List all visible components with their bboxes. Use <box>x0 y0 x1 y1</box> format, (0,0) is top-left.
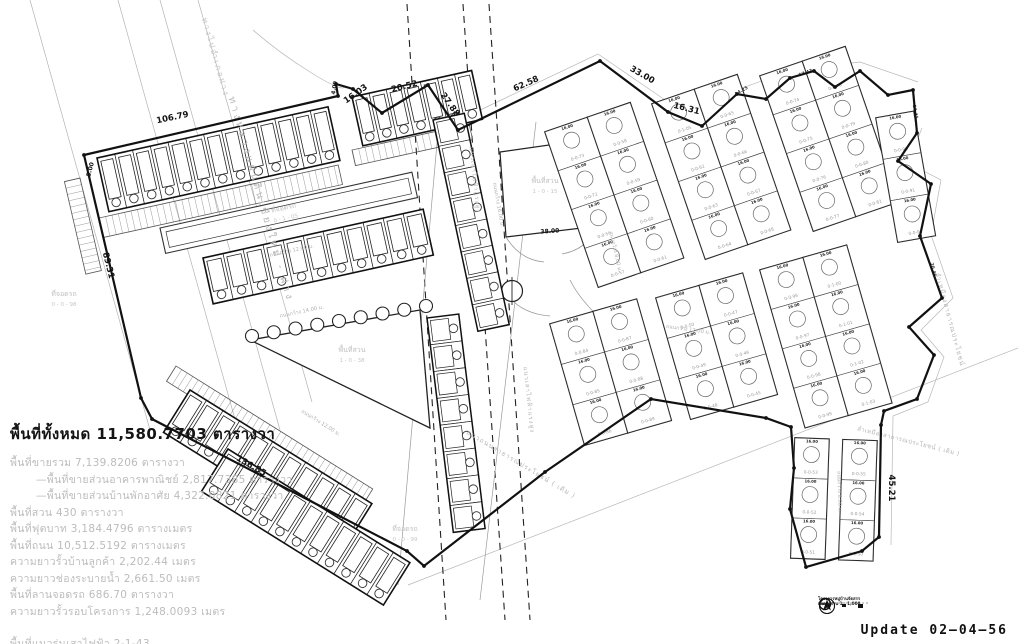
tree-circle <box>246 330 259 343</box>
boundary-vertex <box>426 83 430 87</box>
boundary-vertex <box>82 153 86 157</box>
lot-dim-label: 16.00 <box>851 520 864 525</box>
boundary-vertex <box>918 234 922 238</box>
summary-line: พื้นที่ขายรวม 7,139.8206 ตารางวา <box>10 455 340 472</box>
edge-name-label: ทางไปอำเภอฝาง <box>200 17 231 98</box>
column-circle <box>468 484 478 494</box>
area-label-sub: 1 - 0 - 15 <box>533 189 558 195</box>
area-summary-block: พื้นที่ทั้งหมด 11,580.7703 ตารางวา พื้นท… <box>10 422 340 644</box>
lot-dim-label: 16.00 <box>852 480 865 485</box>
boundary-vertex <box>598 59 602 63</box>
boundary-vertex <box>858 69 862 73</box>
boundary-vertex <box>804 565 808 569</box>
area-label: พื้นที่สวน1 - 0 - 15 <box>531 174 558 195</box>
area-label-sub: 0 - 0 - 98 <box>52 302 77 308</box>
column-circle <box>465 458 475 468</box>
boundary-vertex <box>735 92 739 96</box>
summary-line: พื้นที่สวน 430 ตารางวา <box>10 505 340 522</box>
boundary-vertex <box>764 97 768 101</box>
area-label-title: ที่จอดรถ <box>51 289 76 298</box>
boundary-vertex <box>879 423 883 427</box>
boundary-vertex <box>788 76 792 80</box>
boundary-vertex <box>405 549 409 553</box>
total-area-title: พื้นที่ทั้งหมด 11,580.7703 ตารางวา <box>10 422 340 446</box>
column-circle <box>459 404 469 414</box>
boundary-vertex <box>649 397 653 401</box>
boundary-vertex <box>860 549 864 553</box>
summary-line: ความยาวรั้วบ้านลูกค้า 2,202.44 เมตร <box>10 554 340 571</box>
boundary-vertex <box>788 507 792 511</box>
dimension-label: 45.21 <box>886 475 896 502</box>
boundary-vertex <box>911 88 915 92</box>
boundary-vertex <box>139 396 143 400</box>
column-circle <box>449 324 459 334</box>
column-circle <box>452 350 462 360</box>
north-arrow-icon <box>818 597 836 615</box>
parking-strip <box>64 178 101 274</box>
summary-line: พื้นที่ลานจอดรถ 686.70 ตารางวา <box>10 587 340 604</box>
road-width-label: ถนนกว้าง 14.00 ม. <box>279 303 325 319</box>
boundary-vertex <box>700 124 704 128</box>
parking-strip-rect <box>64 178 101 274</box>
boundary-vertex <box>886 93 890 97</box>
area-label: ที่จอดรถ0 - 0 - 98 <box>51 289 77 308</box>
boundary-vertex <box>833 85 837 89</box>
boundary-vertex <box>907 325 911 329</box>
boundary-vertex <box>812 69 816 73</box>
tree-circle <box>289 322 302 335</box>
area-label: พื้นที่สวน1 - 0 - 38 <box>338 343 365 364</box>
dimension-label: 33.00 <box>628 64 656 86</box>
tree-circle <box>311 318 324 331</box>
area-summary-lines: พื้นที่ขายรวม 7,139.8206 ตารางวา —พื้นที… <box>10 455 340 644</box>
boundary-vertex <box>882 409 886 413</box>
boundary-vertex <box>351 87 355 91</box>
road-width-label: ถนนกว้าง 8.00 ม. <box>835 471 843 513</box>
column-circle <box>472 511 482 521</box>
lot-dim-label: 16.00 <box>806 438 819 443</box>
boundary-vertex <box>932 353 936 357</box>
tree-circle <box>267 326 280 339</box>
tree-circle <box>420 300 433 313</box>
boundary-vertex <box>150 417 154 421</box>
lot-dim-label: 16.00 <box>803 518 816 523</box>
summary-line: ความยาวช่องระบายน้ำ 2,661.50 เมตร <box>10 571 340 588</box>
update-date-label: Update 02–04–56 <box>861 623 1008 638</box>
site-plan-page: 0-0-7316.000-0-7216.000-0-5616.000-0-571… <box>0 0 1024 644</box>
lot-id-label: 0-0-55 <box>852 471 867 477</box>
boundary-vertex <box>940 296 944 300</box>
boundary-vertex <box>915 397 919 401</box>
boundary-vertex <box>380 111 384 115</box>
area-label: ที่จอดรถ0 - 0 - 99 <box>392 524 418 543</box>
boundary-vertex <box>789 425 793 429</box>
dimension-label: 106.79 <box>155 110 189 127</box>
boundary-vertex <box>764 416 768 420</box>
lot-id-label: 0-0-54 <box>850 511 865 517</box>
edge-name-label: แนวเสาไฟฟ้าแรงสูง <box>522 366 537 433</box>
summary-line: —พื้นที่ขายส่วนอาคารพาณิชย์ 2,817.7385 ต… <box>10 472 340 489</box>
tree-circle <box>376 307 389 320</box>
legend: โครงการหมู่บ้านจัดสรร มาตราส่วน 1 : 1,00… <box>818 597 860 606</box>
lot-group: 0-0-5016.000-0-4916.000-0-4816.000-0-471… <box>656 273 777 419</box>
lot-dim-label: 16.00 <box>804 478 817 483</box>
lot-id-label: 0-0-53 <box>804 469 819 475</box>
lot-id-label: 0-0-52 <box>802 509 817 515</box>
lot-dim-label: 16.00 <box>854 440 867 445</box>
boundary-vertex <box>456 128 460 132</box>
boundary-vertex <box>543 470 547 474</box>
boundary-vertex <box>896 159 900 163</box>
lot-group: 0-0-5316.000-0-5216.000-0-5116.000-0-551… <box>791 438 877 561</box>
boundary-vertex <box>877 535 881 539</box>
boundary-vertex <box>422 564 426 568</box>
boundary-vertex <box>915 131 919 135</box>
lot-group: 0-0-8416.000-0-8516.000-0-8616.000-0-871… <box>550 299 671 445</box>
tree-circle <box>354 311 367 324</box>
summary-line: ความยาวรั้วรอบโครงการ 1,248.0093 เมตร <box>10 604 340 621</box>
area-label-title: ที่จอดรถ <box>392 524 417 533</box>
shophouse-stack <box>427 314 485 532</box>
lot-group: 0-0-9616.000-0-9716.000-0-9816.000-0-991… <box>760 245 892 427</box>
summary-line: พื้นที่ฟุตบาท 3,184.4796 ตารางเมตร <box>10 521 340 538</box>
dimension-label: 38.00 <box>540 227 559 235</box>
column-circle <box>455 377 465 387</box>
summary-line: —พื้นที่ขายส่วนบ้านพักอาศัย 4,322.0821 ต… <box>10 488 340 505</box>
boundary-vertex <box>334 82 338 86</box>
area-label-sub: 0 - 0 - 99 <box>393 537 418 543</box>
area-label-sub: 1 - 0 - 38 <box>340 358 365 364</box>
summary-line: พื้นที่แนวร่นเสาไฟฟ้า 2-1-43 <box>10 636 340 644</box>
summary-line: พื้นที่ถนน 10,512.5192 ตารางเมตร <box>10 538 340 555</box>
boundary-vertex <box>666 110 670 114</box>
tree-circle <box>398 303 411 316</box>
boundary-vertex <box>929 182 933 186</box>
boundary-vertex <box>336 94 340 98</box>
boundary-vertex <box>792 466 796 470</box>
tree-circle <box>333 315 346 328</box>
